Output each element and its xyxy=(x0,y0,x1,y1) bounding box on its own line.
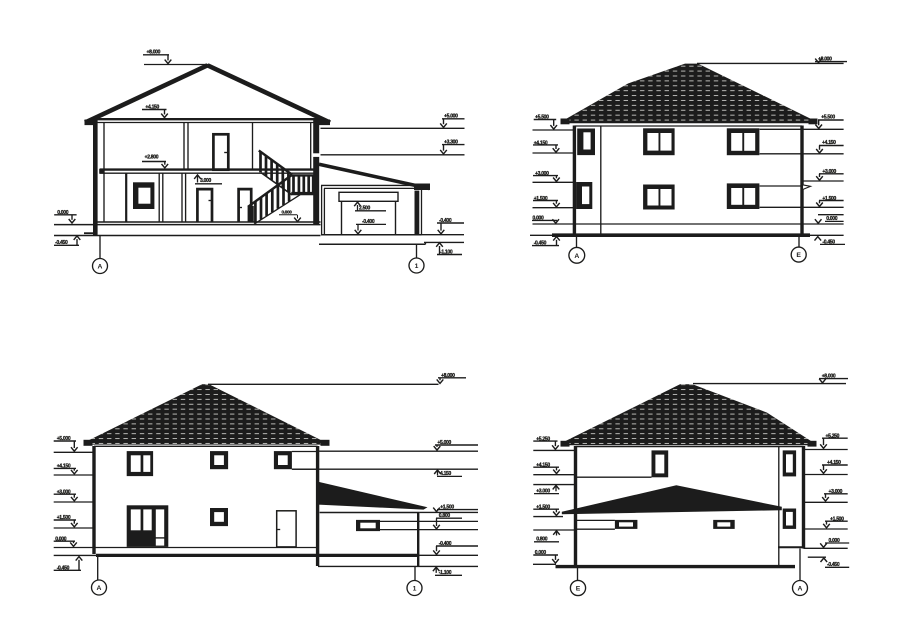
svg-text:E: E xyxy=(576,586,581,593)
svg-text:1: 1 xyxy=(415,263,419,270)
svg-text:3.000: 3.000 xyxy=(200,178,212,184)
svg-text:0.000: 0.000 xyxy=(282,210,293,215)
svg-text:A: A xyxy=(798,586,803,593)
svg-text:1: 1 xyxy=(413,586,417,593)
svg-text:A: A xyxy=(97,585,102,592)
svg-text:E: E xyxy=(796,252,801,259)
svg-text:A: A xyxy=(574,253,579,260)
svg-text:A: A xyxy=(98,264,103,271)
svg-text:+2.800: +2.800 xyxy=(145,155,159,161)
